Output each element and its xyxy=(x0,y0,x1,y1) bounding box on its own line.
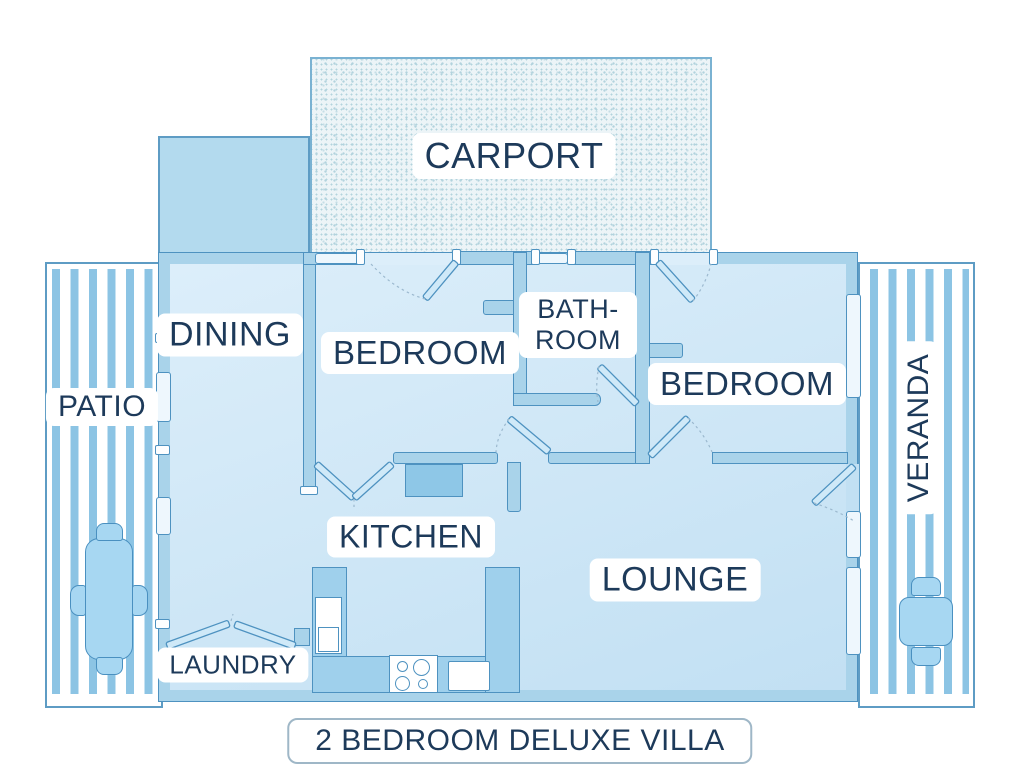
veranda-chair-south xyxy=(911,647,941,666)
room-label-bedroom-right: BEDROOM xyxy=(648,363,846,405)
kitchen-cupboard xyxy=(405,464,463,497)
door-jamb xyxy=(452,249,461,265)
wall-bathroom-bottom xyxy=(513,393,601,406)
room-label-bathroom-line2: ROOM xyxy=(523,325,633,356)
plan-title: 2 BEDROOM DELUXE VILLA xyxy=(287,718,752,764)
door-jamb xyxy=(567,249,576,265)
door-jamb xyxy=(356,249,365,265)
room-label-dining: DINING xyxy=(157,314,303,357)
veranda-chair-north xyxy=(911,577,941,596)
wall-stub-bedroom-left xyxy=(483,300,514,315)
veranda-table xyxy=(899,597,953,646)
window-lounge-right-upper xyxy=(846,511,861,558)
room-label-carport: CARPORT xyxy=(413,133,616,179)
floor-plan-canvas: CARPORT DINING BEDROOM BATH- ROOM BEDROO… xyxy=(0,0,1024,768)
window-bedroom-right-wall xyxy=(846,294,861,398)
window-bathroom-top xyxy=(536,253,568,264)
patio-chair-south xyxy=(96,657,123,675)
wall-dining-bedroom xyxy=(303,252,316,494)
patio-table xyxy=(85,538,133,660)
wall-mid-segment-a xyxy=(393,452,498,464)
wall-mid-segment-b xyxy=(548,452,648,464)
area-label-patio: PATIO xyxy=(46,388,158,426)
front-door-opening xyxy=(363,253,455,265)
kitchen-counter-right xyxy=(485,567,520,693)
stove-burner xyxy=(395,676,410,691)
stove-burner xyxy=(418,679,428,689)
bedroom-right-door-opening xyxy=(656,253,712,265)
stove-burner xyxy=(413,659,430,676)
fridge-freezer-compartment xyxy=(318,627,339,652)
wall-end-cap xyxy=(300,486,318,495)
room-label-bathroom: BATH- ROOM xyxy=(519,292,637,358)
wall-bathroom-right xyxy=(635,252,650,464)
room-label-lounge: LOUNGE xyxy=(590,559,761,602)
room-label-bathroom-line1: BATH- xyxy=(523,294,633,325)
entry-porch-block xyxy=(158,136,310,258)
wall-laundry-jamb xyxy=(294,628,310,646)
patio-chair-north xyxy=(96,523,123,541)
window-dining-left-lower xyxy=(156,497,171,535)
area-label-veranda: VERANDA xyxy=(900,342,938,515)
kitchen-sink xyxy=(448,661,490,691)
window-lounge-right-lower xyxy=(846,567,861,655)
patio-chair-west xyxy=(70,585,86,616)
veranda-door-opening xyxy=(846,464,859,514)
window-tick xyxy=(155,619,170,629)
room-label-kitchen: KITCHEN xyxy=(327,517,495,558)
room-label-laundry: LAUNDRY xyxy=(157,648,308,683)
room-label-bedroom-left: BEDROOM xyxy=(321,332,519,374)
window-tick xyxy=(155,445,170,455)
window-dining-left-upper xyxy=(156,372,171,422)
window-bedroom-left-top xyxy=(315,253,361,264)
door-jamb xyxy=(531,249,540,265)
wall-kitchen-stub xyxy=(507,462,521,512)
patio-chair-east xyxy=(132,585,148,616)
wall-stub-bedroom-right xyxy=(649,343,683,358)
stove-burner xyxy=(397,661,408,672)
door-jamb xyxy=(650,249,659,265)
wall-mid-segment-c xyxy=(712,452,848,464)
door-jamb xyxy=(709,249,718,265)
